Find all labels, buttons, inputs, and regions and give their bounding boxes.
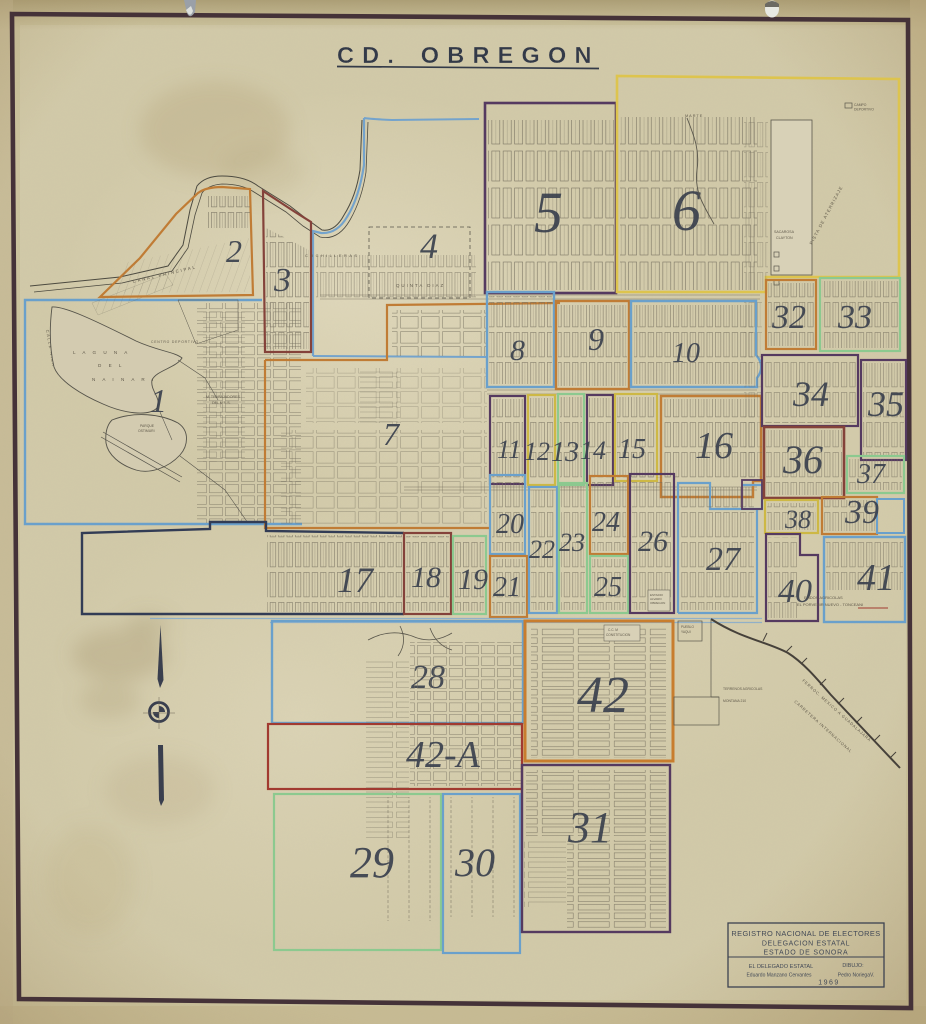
- svg-text:CONSTITUCION: CONSTITUCION: [606, 633, 631, 637]
- svg-text:24: 24: [592, 507, 620, 538]
- svg-text:27: 27: [706, 541, 742, 578]
- svg-text:38: 38: [784, 505, 811, 534]
- svg-text:13: 13: [551, 437, 579, 468]
- svg-text:CAMPO: CAMPO: [854, 103, 867, 107]
- svg-text:3: 3: [273, 262, 291, 299]
- svg-text:REGISTRO NACIONAL DE ELECTORES: REGISTRO NACIONAL DE ELECTORES: [731, 929, 880, 938]
- svg-text:DEL M.S.S.: DEL M.S.S.: [212, 401, 231, 405]
- svg-text:30: 30: [454, 840, 495, 885]
- svg-text:20: 20: [496, 509, 524, 540]
- svg-text:OBREGON: OBREGON: [650, 601, 665, 605]
- svg-text:23: 23: [559, 528, 585, 557]
- svg-text:25: 25: [594, 572, 622, 603]
- svg-text:MONTANA 210: MONTANA 210: [723, 699, 746, 703]
- svg-text:DEPORTIVO: DEPORTIVO: [854, 108, 874, 112]
- svg-text:N A I N A R I: N A I N A R I: [92, 377, 156, 382]
- svg-text:C.C. M: C.C. M: [608, 628, 618, 632]
- svg-text:11: 11: [497, 435, 521, 464]
- svg-text:2: 2: [226, 233, 242, 269]
- svg-text:15: 15: [618, 434, 646, 465]
- svg-text:26: 26: [638, 525, 668, 558]
- svg-text:42: 42: [577, 667, 629, 724]
- svg-text:17: 17: [337, 560, 375, 600]
- svg-text:7: 7: [383, 416, 401, 452]
- svg-text:D E L: D E L: [98, 363, 125, 368]
- svg-text:MARTE: MARTE: [685, 114, 703, 118]
- svg-text:41: 41: [857, 557, 895, 599]
- svg-text:Eduardo Manzano Cervantes: Eduardo Manzano Cervantes: [746, 973, 812, 979]
- svg-text:SACAROSA: SACAROSA: [774, 230, 795, 234]
- svg-text:CLAYTON: CLAYTON: [776, 236, 793, 240]
- svg-text:32: 32: [771, 299, 806, 336]
- svg-text:OSTIMURI: OSTIMURI: [138, 429, 155, 433]
- svg-text:EL PORVENIR NUEVO - TONCEANI: EL PORVENIR NUEVO - TONCEANI: [797, 602, 863, 607]
- svg-text:9: 9: [588, 321, 604, 357]
- svg-text:PARQUE: PARQUE: [140, 424, 155, 428]
- svg-text:CD. OBREGON: CD. OBREGON: [337, 42, 600, 68]
- svg-text:M. TRABAJADORES: M. TRABAJADORES: [206, 395, 240, 399]
- svg-text:EL DELEGADO ESTATAL: EL DELEGADO ESTATAL: [749, 964, 813, 970]
- svg-text:TERRENOS AGRICOLAS: TERRENOS AGRICOLAS: [723, 687, 763, 691]
- svg-text:DIBUJO:: DIBUJO:: [842, 963, 863, 969]
- svg-text:34: 34: [792, 374, 829, 414]
- svg-text:33: 33: [837, 299, 872, 336]
- svg-text:1969: 1969: [818, 980, 840, 987]
- svg-text:6: 6: [672, 178, 701, 243]
- svg-text:29: 29: [350, 838, 394, 887]
- svg-text:PUEBLO: PUEBLO: [681, 625, 694, 629]
- svg-text:EJIDOS AGRICOLAS: EJIDOS AGRICOLAS: [804, 595, 843, 600]
- svg-text:L A G U N A: L A G U N A: [73, 350, 130, 355]
- svg-text:8: 8: [510, 334, 525, 367]
- svg-text:5: 5: [534, 180, 563, 245]
- svg-text:1: 1: [150, 383, 167, 420]
- svg-text:DELEGACION ESTATAL: DELEGACION ESTATAL: [762, 941, 850, 948]
- svg-text:36: 36: [782, 437, 823, 482]
- svg-text:37: 37: [856, 459, 886, 490]
- svg-text:14: 14: [580, 436, 606, 465]
- svg-text:31: 31: [567, 803, 612, 852]
- svg-text:Pedro NoriegaV.: Pedro NoriegaV.: [838, 973, 875, 979]
- svg-text:12: 12: [524, 437, 550, 466]
- svg-text:ESTADO DE SONORA: ESTADO DE SONORA: [763, 950, 848, 957]
- svg-text:16: 16: [695, 425, 733, 467]
- svg-text:10: 10: [672, 338, 700, 369]
- svg-text:YAQUI: YAQUI: [681, 630, 691, 634]
- svg-text:19: 19: [458, 563, 488, 596]
- svg-text:CENTRO DEPORTIVO: CENTRO DEPORTIVO: [151, 340, 199, 344]
- svg-text:35: 35: [867, 384, 904, 424]
- svg-text:21: 21: [493, 572, 521, 603]
- svg-text:42-A: 42-A: [406, 734, 481, 776]
- svg-text:22: 22: [529, 535, 555, 564]
- svg-text:18: 18: [411, 561, 441, 594]
- svg-text:39: 39: [844, 494, 879, 531]
